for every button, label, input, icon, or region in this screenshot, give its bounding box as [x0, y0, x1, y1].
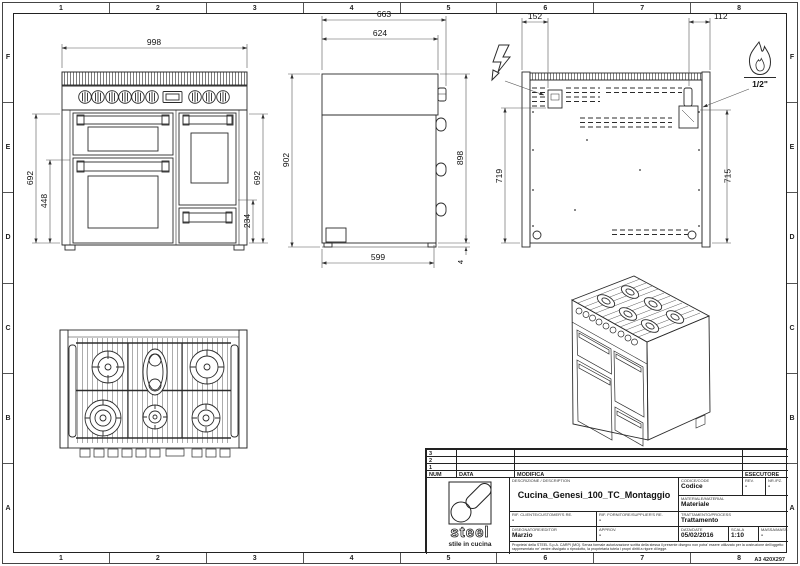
top-view-knob-row	[80, 449, 230, 457]
rear-hole-right	[688, 231, 696, 239]
field-rif-fornitore: RIF. FORNITORE/SUPPLIER'S RE. -	[596, 511, 678, 526]
revision-row-number: 2	[426, 456, 456, 463]
revision-cell	[456, 456, 514, 463]
field-scala-value: 1:10	[731, 532, 756, 540]
front-upper-left-oven	[73, 113, 173, 155]
revision-cell	[742, 449, 788, 456]
field-materiale-value: Materiale	[681, 501, 786, 509]
rear-view	[522, 72, 710, 247]
revision-cell	[514, 449, 742, 456]
side-dimensions	[322, 16, 470, 268]
field-data: DATA/DATE 05/02/2016	[678, 526, 728, 541]
company-logo: steel stile in cucina	[426, 477, 509, 554]
electric-icon	[492, 45, 510, 80]
front-knobs	[79, 91, 230, 104]
field-codice: CODICE/CODE Codice	[678, 477, 742, 495]
dim-front-height-lower: 234	[242, 214, 252, 228]
top-view	[60, 330, 247, 457]
field-nrpz-value: -	[768, 483, 786, 491]
dim-side-depth-base: 599	[371, 252, 385, 262]
rear-electric-box	[548, 90, 562, 108]
field-trattamento: TRATTAMENTO/PROCESS Trattamento	[678, 511, 788, 526]
field-approv-value: -	[599, 532, 676, 540]
field-codice-value: Codice	[681, 483, 740, 491]
field-rif-cliente: RIF. CLIENTE/CUSTOMER'S RE. -	[509, 511, 596, 526]
side-handle-tab	[436, 203, 446, 216]
drawing-sheet: 1 2 3 4 5 6 7 8 1 2 3 4 5 6 7 8 F E D C …	[0, 0, 800, 566]
revision-row-number: 3	[426, 449, 456, 456]
burner-center-bottom	[143, 405, 167, 429]
dim-front-width: 998	[147, 37, 161, 47]
dim-rear-gas-offset: 112	[714, 11, 728, 21]
dim-side-depth-total: 663	[377, 9, 391, 19]
logo-tagline: stile in cucina	[449, 541, 492, 548]
logo-square	[449, 482, 491, 524]
revision-cell	[514, 463, 742, 470]
field-rif-cliente-value: -	[512, 517, 594, 525]
dim-front-height-left: 692	[25, 171, 35, 185]
field-massa-value: -	[761, 532, 786, 540]
field-trattamento-value: Trattamento	[681, 517, 786, 525]
dim-rear-electric-offset: 152	[528, 11, 542, 21]
title-block: 3 2 1 NUM DATA MODIFICA ESECUTORE steel …	[425, 448, 787, 553]
revision-cell	[742, 463, 788, 470]
dim-side-foot-gap: 4	[456, 260, 465, 264]
iso-doors	[577, 330, 644, 446]
field-description-label: DESCRIZIONE / DESCRIPTION	[512, 479, 676, 483]
revision-cell	[456, 449, 514, 456]
field-description: DESCRIZIONE / DESCRIPTION Cucina_Genesi_…	[509, 477, 678, 511]
dim-rear-gas-height: 715	[723, 169, 733, 183]
side-view	[322, 74, 446, 247]
field-massa-label: MASSA/MASS kg	[761, 528, 786, 532]
front-right-oven	[179, 113, 236, 205]
dim-side-depth-top: 624	[373, 28, 387, 38]
field-rev-value: -	[745, 483, 763, 491]
revision-header-modifica: MODIFICA	[514, 470, 742, 477]
field-disegnatore: DISEGNATORE/EDITOR Marzio	[509, 526, 596, 541]
front-drawer	[179, 208, 236, 243]
field-rif-fornitore-value: -	[599, 517, 676, 525]
side-handle-tab	[436, 163, 446, 176]
logo-wordmark: steel	[450, 524, 489, 541]
iso-side-face	[647, 316, 710, 440]
dim-front-height-total: 902	[281, 153, 291, 167]
burner-right-bottom	[192, 404, 220, 432]
isometric-view	[572, 276, 710, 446]
burner-left-top	[92, 351, 124, 383]
revision-header-num: NUM	[426, 470, 456, 477]
burner-right-top	[190, 350, 224, 384]
field-description-value: Cucina_Genesi_100_TC_Montaggio	[512, 490, 676, 501]
dim-side-height-body: 898	[455, 151, 465, 165]
revision-row-number: 1	[426, 463, 456, 470]
field-materiale: MATERIALE/MATERIAL Materiale	[678, 495, 788, 511]
legal-disclaimer: Proprieta' della STEEL S.p.A. CARPI (MO)…	[509, 541, 788, 554]
revision-header-data: DATA	[456, 470, 514, 477]
rear-dimensions	[501, 18, 749, 243]
field-disegnatore-value: Marzio	[512, 532, 594, 540]
side-knob	[438, 88, 446, 101]
field-data-value: 05/02/2016	[681, 532, 726, 540]
rear-vents	[532, 88, 688, 235]
dim-front-height-inner: 448	[39, 194, 49, 208]
burner-left-bottom-wok	[85, 400, 121, 436]
gas-thread-label: 1/2"	[752, 79, 768, 89]
dim-front-height-right: 692	[252, 171, 262, 185]
dim-rear-electric-height: 719	[494, 169, 504, 183]
front-lower-left-oven	[73, 158, 173, 243]
revision-header-esecutore: ESECUTORE	[742, 470, 788, 477]
burner-center-top-oval	[143, 349, 167, 395]
rear-hole-left	[533, 231, 541, 239]
field-rev: REV. -	[742, 477, 765, 495]
front-view	[62, 72, 247, 250]
gas-flame-icon	[744, 42, 776, 78]
rear-gas-connection	[679, 88, 698, 128]
field-nrpz: NR./PZ. -	[765, 477, 788, 495]
field-approv: APPROV. -	[596, 526, 678, 541]
side-handle-tab	[436, 118, 446, 131]
revision-cell	[514, 456, 742, 463]
revision-cell	[456, 463, 514, 470]
revision-cell	[742, 456, 788, 463]
iso-brand-plate	[696, 415, 705, 428]
rear-screw-dots	[532, 111, 700, 227]
field-scala: SCALA 1:10	[728, 526, 758, 541]
field-massa: MASSA/MASS kg -	[758, 526, 788, 541]
